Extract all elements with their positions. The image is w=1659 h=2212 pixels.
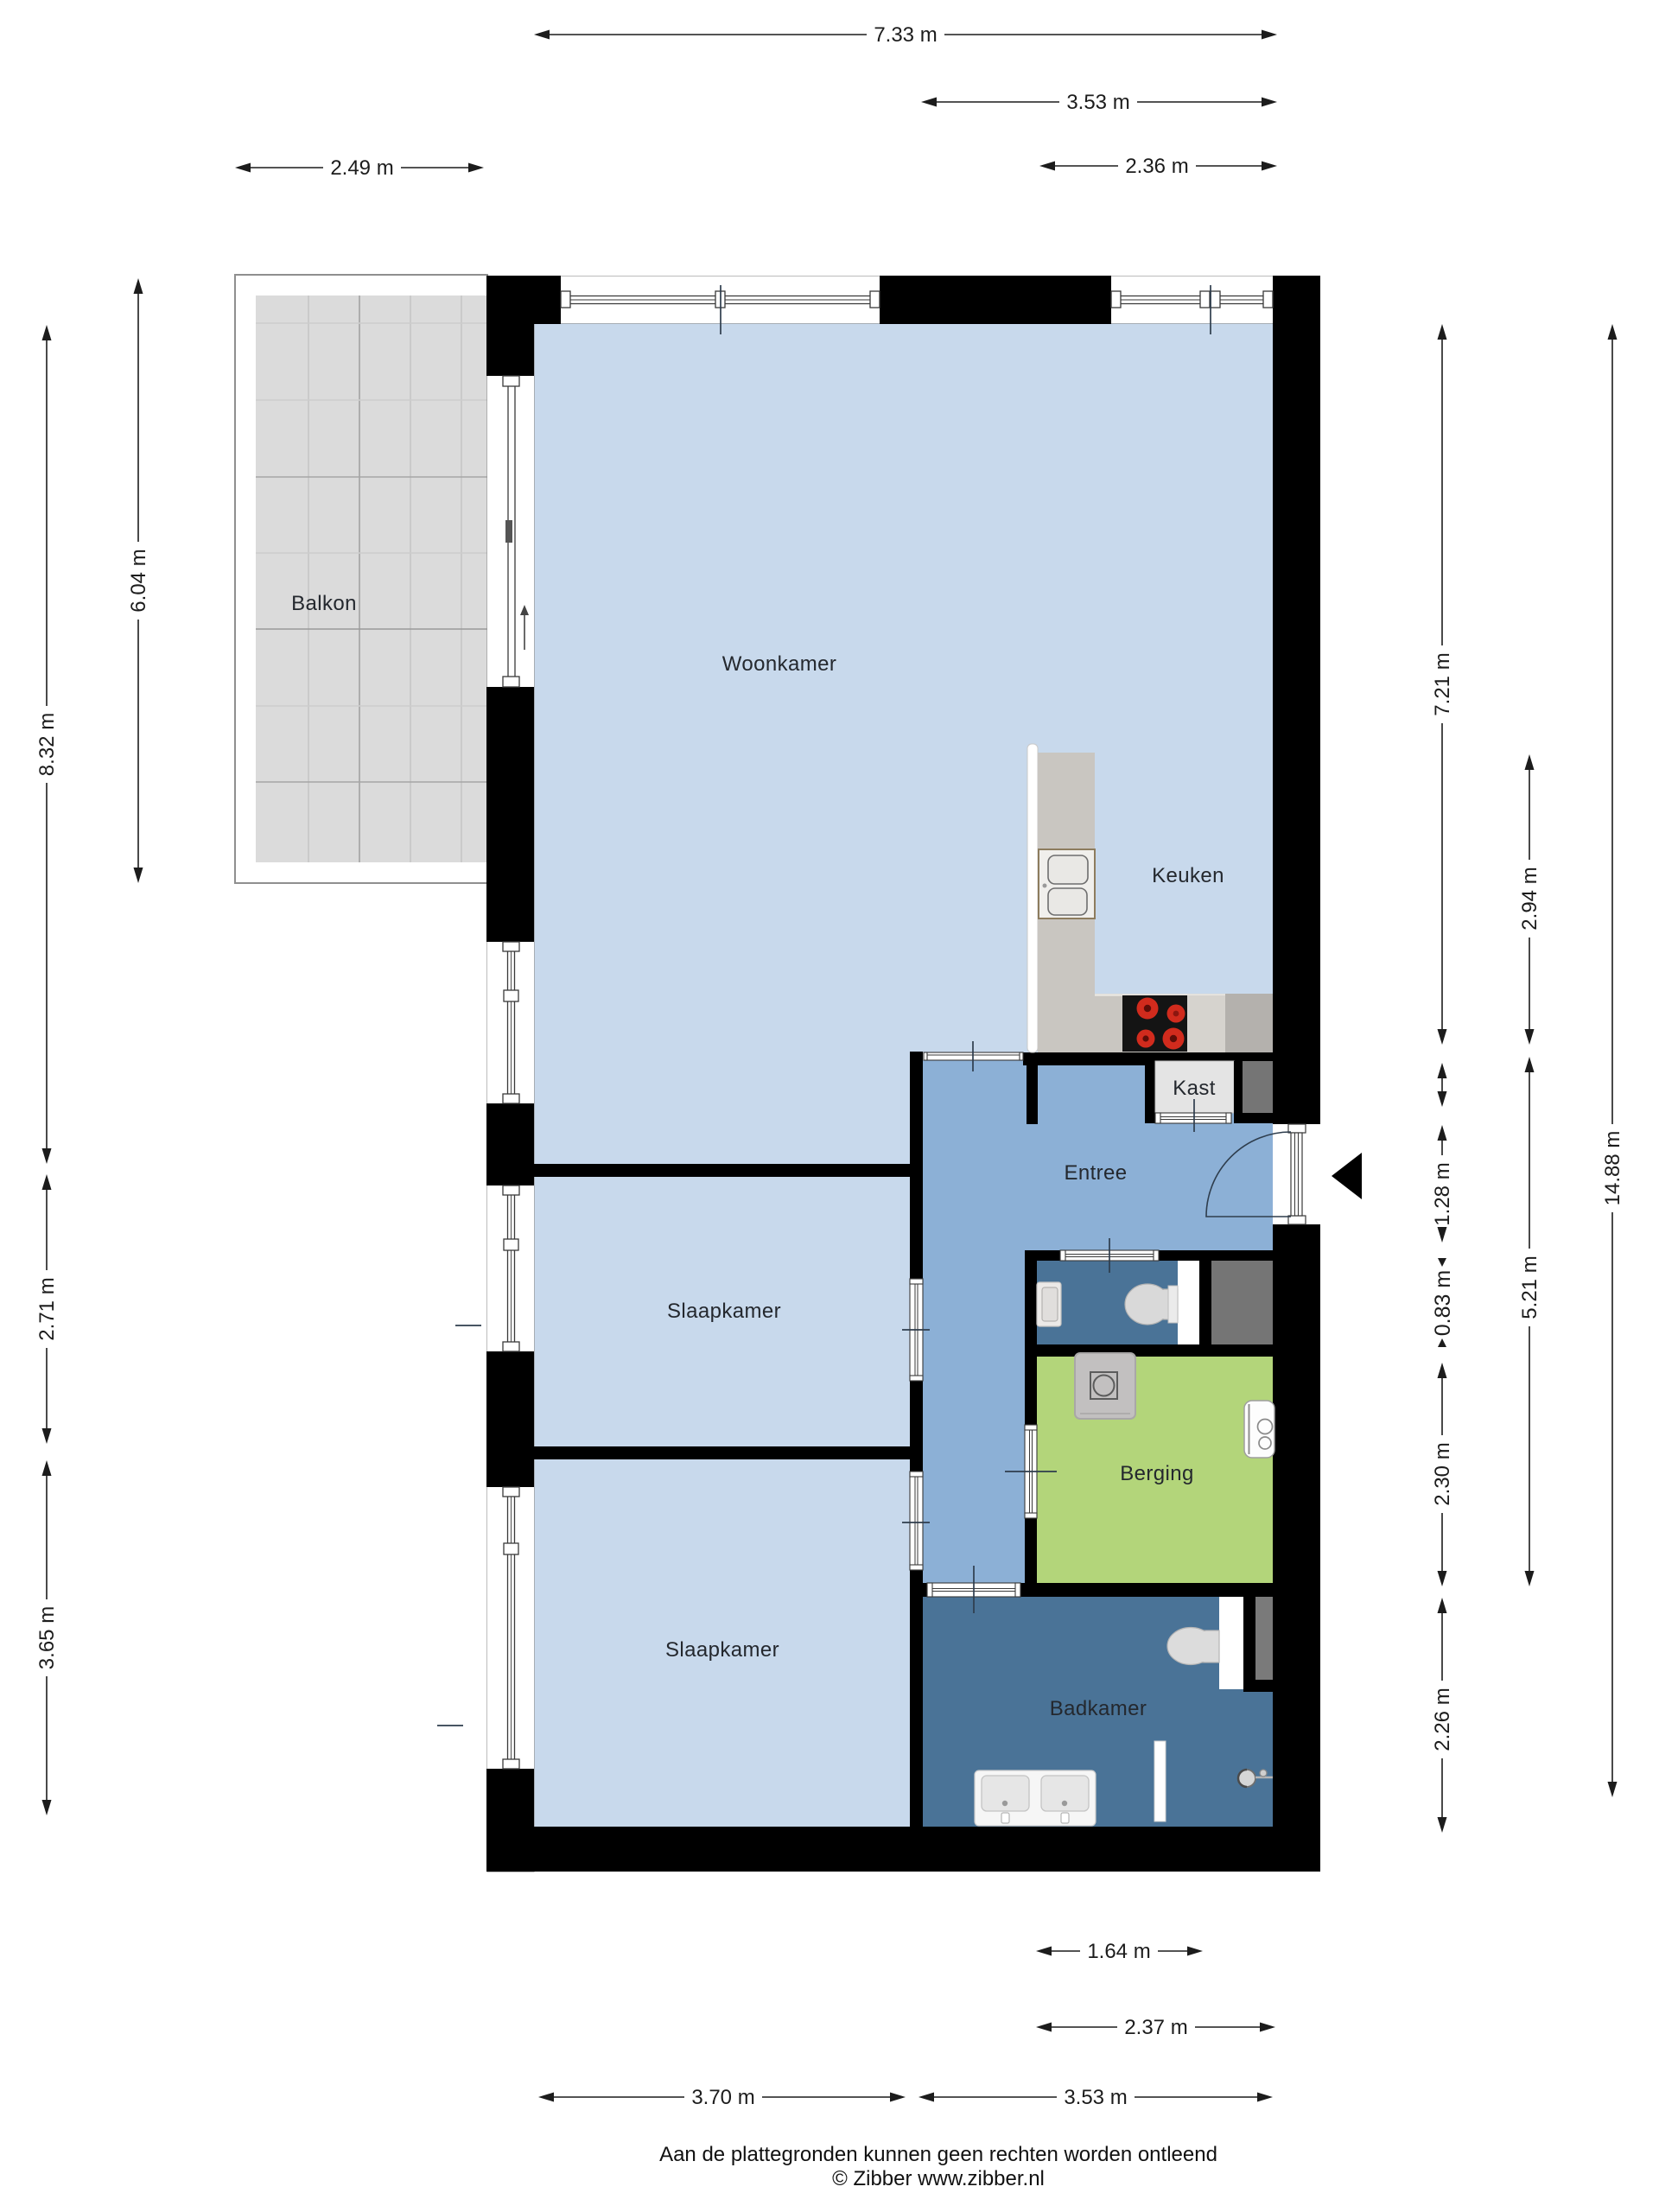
svg-text:2.36 m: 2.36 m (1125, 155, 1188, 178)
svg-text:3.53 m: 3.53 m (1064, 2086, 1127, 2109)
svg-text:Aan de plattegronden kunnen ge: Aan de plattegronden kunnen geen rechten… (659, 2143, 1217, 2166)
svg-text:Slaapkamer: Slaapkamer (665, 1638, 779, 1662)
svg-text:2.49 m: 2.49 m (330, 156, 393, 180)
svg-text:0.83 m: 0.83 m (1431, 1270, 1455, 1336)
svg-text:3.70 m: 3.70 m (691, 2086, 754, 2109)
svg-text:Badkamer: Badkamer (1050, 1697, 1147, 1720)
svg-text:6.04 m: 6.04 m (127, 549, 150, 612)
svg-text:2.71 m: 2.71 m (35, 1277, 59, 1340)
svg-text:1.64 m: 1.64 m (1087, 1940, 1150, 1963)
svg-text:Berging: Berging (1120, 1462, 1194, 1485)
svg-text:2.37 m: 2.37 m (1124, 2016, 1187, 2039)
svg-text:8.32 m: 8.32 m (35, 713, 59, 776)
svg-text:2.30 m: 2.30 m (1431, 1442, 1454, 1505)
svg-text:2.94 m: 2.94 m (1518, 867, 1541, 930)
svg-text:Entree: Entree (1064, 1161, 1127, 1185)
svg-text:© Zibber www.zibber.nl: © Zibber www.zibber.nl (832, 2167, 1045, 2190)
svg-text:Balkon: Balkon (291, 592, 357, 615)
svg-text:3.53 m: 3.53 m (1066, 91, 1129, 114)
svg-text:2.26 m: 2.26 m (1431, 1688, 1454, 1751)
svg-text:Keuken: Keuken (1152, 864, 1224, 887)
svg-text:7.33 m: 7.33 m (874, 23, 937, 47)
svg-text:14.88 m: 14.88 m (1601, 1131, 1624, 1206)
svg-text:7.21 m: 7.21 m (1431, 652, 1454, 715)
svg-text:Slaapkamer: Slaapkamer (667, 1300, 781, 1323)
svg-text:5.21 m: 5.21 m (1518, 1255, 1541, 1319)
svg-text:Kast: Kast (1173, 1077, 1216, 1100)
svg-text:Woonkamer: Woonkamer (722, 652, 837, 676)
svg-text:1.28 m: 1.28 m (1431, 1162, 1454, 1225)
svg-text:3.65 m: 3.65 m (35, 1606, 59, 1669)
